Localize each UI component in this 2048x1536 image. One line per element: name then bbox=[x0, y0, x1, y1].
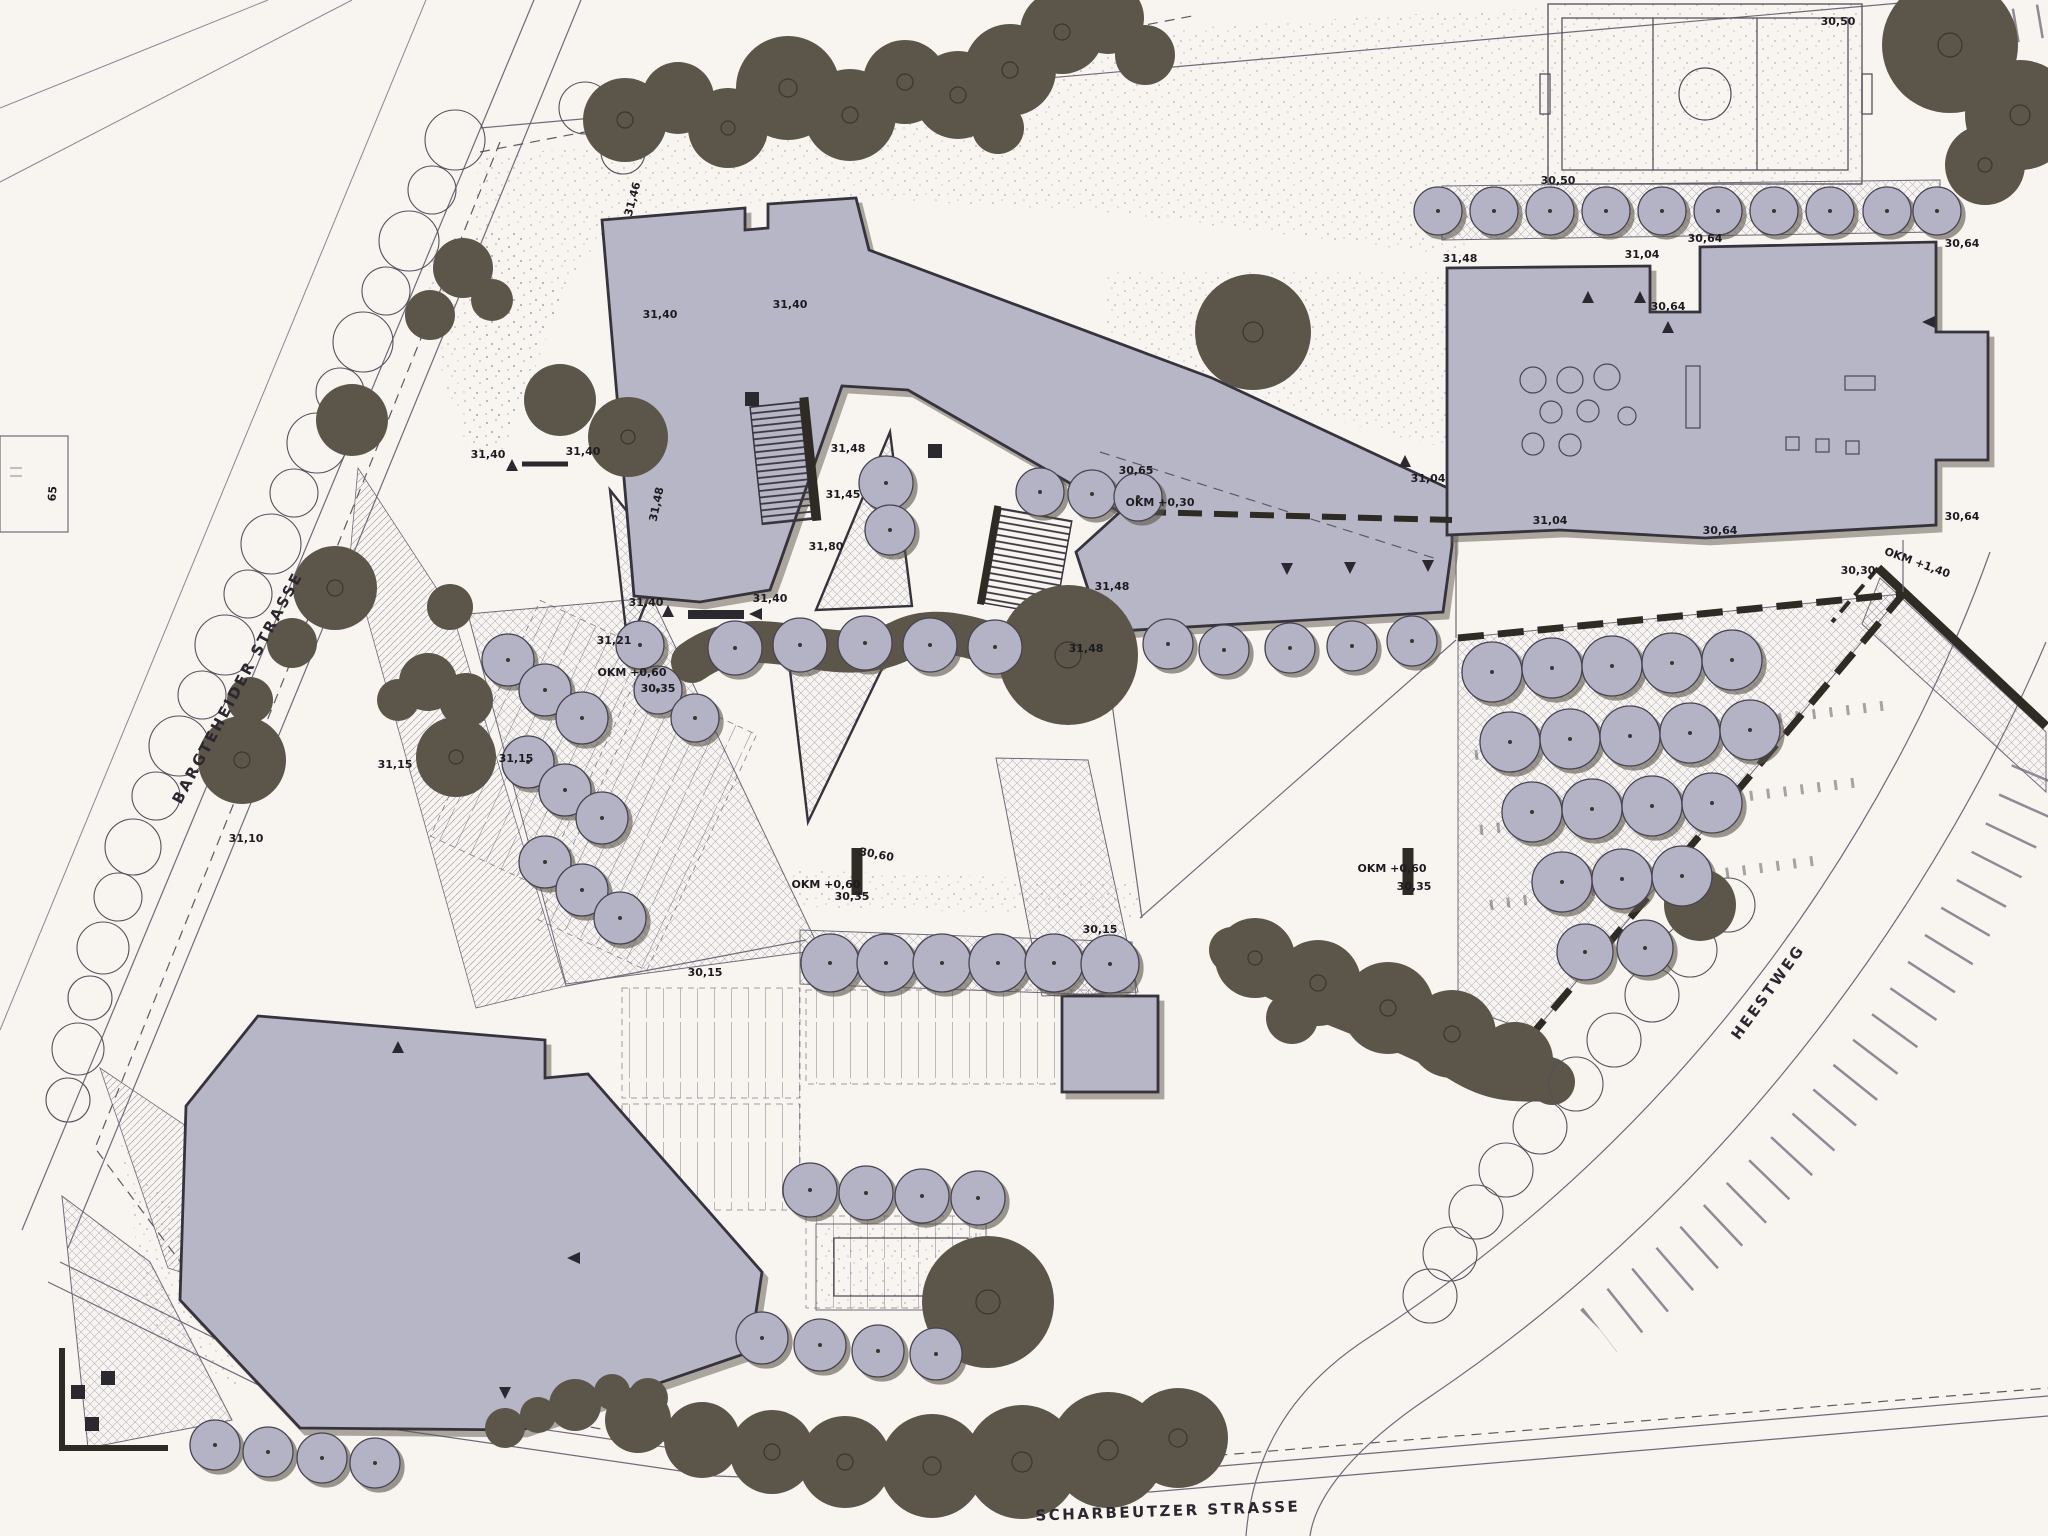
tree-center-dot bbox=[1436, 209, 1440, 213]
entrance-arrow-left-icon bbox=[749, 608, 762, 620]
spot-elevation-label: 31,40 bbox=[629, 596, 664, 609]
entrance-arrow-up-icon bbox=[506, 459, 518, 471]
spot-elevation-label: 30,60 bbox=[858, 845, 895, 864]
tree-center-dot bbox=[1583, 950, 1587, 954]
spot-elevation-label: OKM +0,30 bbox=[1125, 496, 1194, 509]
spot-elevation-label: 30,35 bbox=[641, 682, 676, 695]
existing-tree-outline-icon bbox=[1587, 1013, 1641, 1067]
building-north-east bbox=[1447, 242, 1988, 538]
existing-tree-outline-icon bbox=[333, 312, 393, 372]
tree-center-dot bbox=[1828, 209, 1832, 213]
spot-elevation-label: 31,40 bbox=[773, 298, 808, 311]
existing-tree-outline-icon bbox=[46, 1078, 90, 1122]
tree-center-dot bbox=[1748, 728, 1752, 732]
tree-center-dot bbox=[1038, 490, 1042, 494]
spot-elevation-label: 31,48 bbox=[1095, 580, 1130, 593]
tree-center-dot bbox=[1530, 810, 1534, 814]
tree-center-dot bbox=[993, 645, 997, 649]
tree-center-dot bbox=[1052, 961, 1056, 965]
spot-elevation-label: 30,64 bbox=[1945, 510, 1980, 523]
existing-tree-icon bbox=[1477, 1022, 1553, 1098]
existing-tree-outline-icon bbox=[1625, 968, 1679, 1022]
spot-elevation-label: 31,48 bbox=[1443, 252, 1478, 265]
tree-center-dot bbox=[1650, 804, 1654, 808]
tree-center-dot bbox=[1222, 648, 1226, 652]
existing-tree-outline-icon bbox=[1423, 1227, 1477, 1281]
entrance-arrow-up-icon bbox=[662, 605, 674, 617]
existing-tree-icon bbox=[1128, 1388, 1228, 1488]
spot-elevation-label: 31,40 bbox=[566, 445, 601, 458]
spot-elevation-label: 31,40 bbox=[643, 308, 678, 321]
site-object-icon bbox=[745, 392, 759, 406]
tree-center-dot bbox=[1410, 639, 1414, 643]
tree-center-dot bbox=[1288, 646, 1292, 650]
tree-center-dot bbox=[863, 641, 867, 645]
tree-center-dot bbox=[996, 961, 1000, 965]
site-object-icon bbox=[71, 1385, 85, 1399]
spot-elevation-label: 31,48 bbox=[831, 442, 866, 455]
existing-tree-icon bbox=[664, 1402, 740, 1478]
tree-center-dot bbox=[1643, 946, 1647, 950]
tree-center-dot bbox=[1508, 740, 1512, 744]
spot-elevation-label: 31,15 bbox=[499, 752, 534, 765]
tree-center-dot bbox=[1670, 661, 1674, 665]
tree-center-dot bbox=[864, 1191, 868, 1195]
spot-elevation-label: 30,35 bbox=[835, 890, 870, 903]
spot-elevation-label: 31,04 bbox=[1533, 514, 1568, 527]
site-plan-canvas: { "colors": { "paper": "#f8f5f1", "build… bbox=[0, 0, 2048, 1536]
tree-center-dot bbox=[798, 643, 802, 647]
tree-center-dot bbox=[1590, 807, 1594, 811]
existing-tree-icon bbox=[427, 584, 473, 630]
tree-center-dot bbox=[976, 1196, 980, 1200]
tree-center-dot bbox=[876, 1349, 880, 1353]
existing-tree-icon bbox=[377, 679, 419, 721]
tree-center-dot bbox=[320, 1456, 324, 1460]
tree-center-dot bbox=[580, 888, 584, 892]
tree-center-dot bbox=[638, 643, 642, 647]
existing-tree-icon bbox=[405, 290, 455, 340]
tree-center-dot bbox=[1090, 492, 1094, 496]
building-small-annex bbox=[1062, 996, 1158, 1092]
tree-center-dot bbox=[1660, 209, 1664, 213]
tree-center-dot bbox=[1620, 877, 1624, 881]
tree-center-dot bbox=[1548, 209, 1552, 213]
spot-elevation-label: OKM +0,60 bbox=[1357, 862, 1426, 875]
spot-elevation-label: 30,30 bbox=[1841, 564, 1876, 577]
existing-tree-icon bbox=[293, 546, 377, 630]
existing-tree-icon bbox=[471, 279, 513, 321]
tree-center-dot bbox=[1610, 664, 1614, 668]
spot-elevation-label: 30,15 bbox=[688, 966, 723, 979]
tree-center-dot bbox=[693, 716, 697, 720]
tree-center-dot bbox=[1885, 209, 1889, 213]
spot-elevation-label: 30,50 bbox=[1821, 15, 1856, 28]
tree-center-dot bbox=[928, 643, 932, 647]
spot-elevation-label: 30,50 bbox=[1541, 174, 1576, 187]
street-name-label: HEESTWEG bbox=[1727, 941, 1808, 1043]
tree-center-dot bbox=[1490, 670, 1494, 674]
existing-tree-outline-icon bbox=[68, 976, 112, 1020]
spot-elevation-label: 30,15 bbox=[1083, 923, 1118, 936]
tree-center-dot bbox=[266, 1450, 270, 1454]
tree-center-dot bbox=[818, 1343, 822, 1347]
entrance-arrow-up-icon bbox=[1399, 455, 1411, 467]
tree-center-dot bbox=[1108, 962, 1112, 966]
existing-tree-icon bbox=[549, 1379, 601, 1431]
existing-tree-outline-icon bbox=[224, 570, 272, 618]
tree-center-dot bbox=[1560, 880, 1564, 884]
spot-elevation-label: 30,35 bbox=[1397, 880, 1432, 893]
existing-tree-icon bbox=[316, 384, 388, 456]
spot-elevation-label: 30,64 bbox=[1703, 524, 1738, 537]
existing-tree-icon bbox=[1945, 125, 2025, 205]
tree-center-dot bbox=[760, 1336, 764, 1340]
existing-tree-outline-icon bbox=[105, 819, 161, 875]
tree-center-dot bbox=[828, 961, 832, 965]
neighbour-parcel-65 bbox=[0, 436, 68, 532]
goal-icon bbox=[1862, 74, 1872, 114]
site-object-icon bbox=[101, 1371, 115, 1385]
existing-tree-icon bbox=[1195, 274, 1311, 390]
existing-tree-icon bbox=[416, 717, 496, 797]
spot-elevation-label: 31,40 bbox=[753, 592, 788, 605]
tree-center-dot bbox=[1550, 666, 1554, 670]
street-name-label: SCHARBEUTZER STRASSE bbox=[1035, 1497, 1300, 1524]
tree-center-dot bbox=[920, 1194, 924, 1198]
existing-tree-outline-icon bbox=[362, 267, 410, 315]
parcel-number-label: 65 bbox=[45, 486, 59, 502]
spot-elevation-label: 31,04 bbox=[1411, 472, 1446, 485]
spot-elevation-label: 31,40 bbox=[471, 448, 506, 461]
tree-center-dot bbox=[1680, 874, 1684, 878]
existing-tree-outline-icon bbox=[77, 922, 129, 974]
tree-center-dot bbox=[888, 528, 892, 532]
tree-center-dot bbox=[563, 788, 567, 792]
tree-center-dot bbox=[1772, 209, 1776, 213]
spot-elevation-label: 30,65 bbox=[1119, 464, 1154, 477]
tree-center-dot bbox=[1350, 644, 1354, 648]
site-plan-drawing: 30,5030,5031,4831,0430,6430,6430,6430,64… bbox=[0, 0, 2048, 1536]
tree-center-dot bbox=[1716, 209, 1720, 213]
tree-center-dot bbox=[1688, 731, 1692, 735]
spot-elevation-label: 31,45 bbox=[826, 488, 861, 501]
existing-tree-icon bbox=[588, 397, 668, 477]
tree-center-dot bbox=[1628, 734, 1632, 738]
existing-tree-outline-icon bbox=[1479, 1143, 1533, 1197]
spot-elevation-label: 31,21 bbox=[597, 634, 632, 647]
existing-tree-outline-icon bbox=[241, 514, 301, 574]
existing-tree-outline-icon bbox=[52, 1023, 104, 1075]
existing-tree-icon bbox=[799, 1416, 891, 1508]
spot-elevation-label: 31,80 bbox=[809, 540, 844, 553]
tree-center-dot bbox=[543, 860, 547, 864]
tree-center-dot bbox=[1935, 209, 1939, 213]
tree-center-dot bbox=[213, 1443, 217, 1447]
existing-tree-outline-icon bbox=[94, 873, 142, 921]
tree-center-dot bbox=[934, 1352, 938, 1356]
tree-center-dot bbox=[373, 1461, 377, 1465]
existing-tree-outline-icon bbox=[1449, 1185, 1503, 1239]
existing-tree-outline-icon bbox=[408, 166, 456, 214]
tree-center-dot bbox=[1568, 737, 1572, 741]
tree-center-dot bbox=[1166, 642, 1170, 646]
existing-tree-outline-icon bbox=[1513, 1100, 1567, 1154]
existing-tree-icon bbox=[972, 102, 1024, 154]
tree-center-dot bbox=[580, 716, 584, 720]
spot-elevation-label: 31,15 bbox=[378, 758, 413, 771]
tree-center-dot bbox=[1710, 801, 1714, 805]
spot-elevation-label: 30,64 bbox=[1688, 232, 1723, 245]
spot-elevation-label: 30,64 bbox=[1945, 237, 1980, 250]
spot-elevation-label: OKM +0,60 bbox=[597, 666, 666, 679]
spot-elevation-label: 30,64 bbox=[1651, 300, 1686, 313]
spot-elevation-label: OKM +1,40 bbox=[1883, 545, 1953, 581]
sports-field bbox=[1540, 4, 1872, 184]
existing-tree-icon bbox=[485, 1408, 525, 1448]
site-object-icon bbox=[928, 444, 942, 458]
existing-tree-outline-icon bbox=[270, 469, 318, 517]
spot-elevation-label: 31,48 bbox=[1069, 642, 1104, 655]
tree-center-dot bbox=[618, 916, 622, 920]
existing-tree-icon bbox=[594, 1374, 630, 1410]
tree-center-dot bbox=[506, 658, 510, 662]
tree-center-dot bbox=[884, 961, 888, 965]
tree-center-dot bbox=[600, 816, 604, 820]
tree-center-dot bbox=[884, 481, 888, 485]
existing-tree-icon bbox=[628, 1378, 668, 1418]
tree-center-dot bbox=[733, 646, 737, 650]
tree-center-dot bbox=[808, 1188, 812, 1192]
tree-center-dot bbox=[940, 961, 944, 965]
tree-center-dot bbox=[1604, 209, 1608, 213]
tree-center-dot bbox=[1730, 658, 1734, 662]
spot-elevation-label: 31,10 bbox=[229, 832, 264, 845]
existing-tree-icon bbox=[1266, 992, 1318, 1044]
tree-center-dot bbox=[1492, 209, 1496, 213]
existing-tree-icon bbox=[520, 1397, 556, 1433]
existing-tree-icon bbox=[524, 364, 596, 436]
spot-elevation-label: 31,04 bbox=[1625, 248, 1660, 261]
site-object-icon bbox=[85, 1417, 99, 1431]
existing-tree-icon bbox=[1115, 25, 1175, 85]
tree-center-dot bbox=[543, 688, 547, 692]
